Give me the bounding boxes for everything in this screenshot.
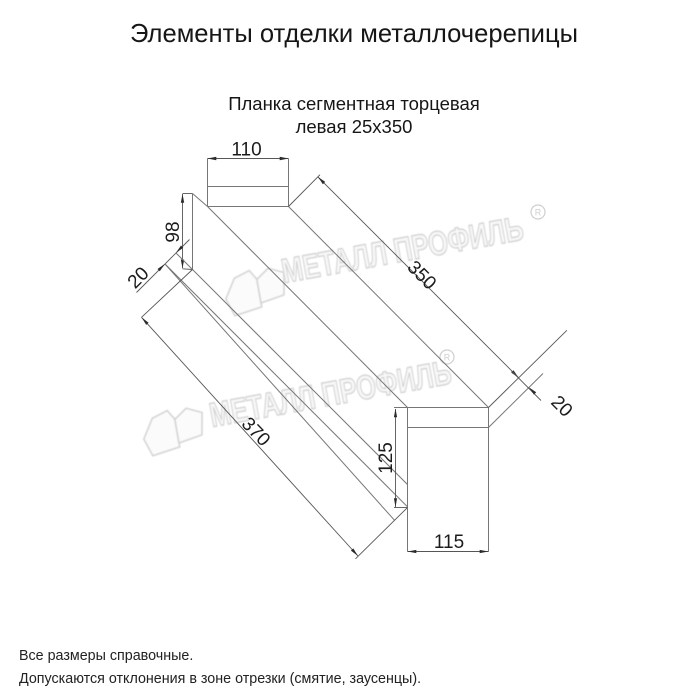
svg-text:98: 98 bbox=[163, 221, 184, 242]
svg-text:20: 20 bbox=[124, 263, 154, 293]
svg-text:125: 125 bbox=[376, 442, 397, 474]
svg-text:R: R bbox=[444, 353, 451, 363]
svg-text:R: R bbox=[535, 208, 542, 218]
svg-text:20: 20 bbox=[546, 392, 576, 422]
svg-text:115: 115 bbox=[434, 532, 464, 553]
svg-text:МЕТАЛЛ ПРОФИЛЬ: МЕТАЛЛ ПРОФИЛЬ bbox=[279, 210, 527, 291]
svg-text:110: 110 bbox=[231, 140, 261, 161]
